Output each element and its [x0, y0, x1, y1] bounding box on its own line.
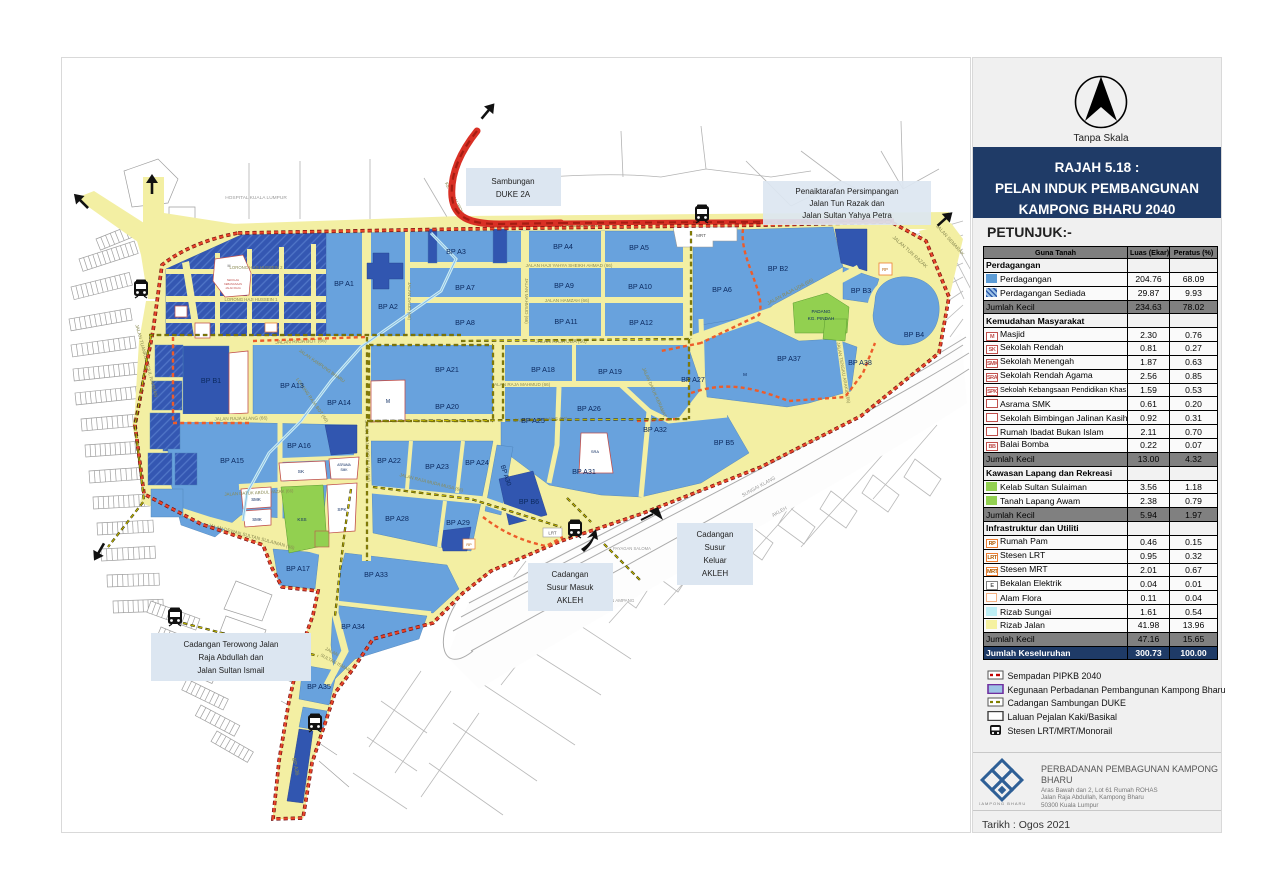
svg-text:BP A13: BP A13 — [280, 381, 304, 390]
svg-text:KAMPONG BHARU: KAMPONG BHARU — [979, 801, 1026, 806]
svg-text:SK: SK — [298, 469, 305, 475]
svg-text:ASRAMA: ASRAMA — [337, 463, 351, 467]
svg-text:KG. PINDAH: KG. PINDAH — [808, 316, 835, 321]
svg-text:BP A17: BP A17 — [286, 564, 310, 573]
svg-text:SEKOLAH: SEKOLAH — [227, 278, 239, 282]
svg-text:BP A3: BP A3 — [446, 247, 466, 256]
svg-text:BP A1: BP A1 — [334, 279, 354, 288]
svg-text:BP B4: BP B4 — [904, 330, 924, 339]
svg-text:JALAN HAJI YAHYA SHEIKH AHMAD: JALAN HAJI YAHYA SHEIKH AHMAD (66) — [526, 263, 613, 268]
svg-text:BP A37: BP A37 — [777, 354, 801, 363]
svg-text:Susur Masuk: Susur Masuk — [547, 583, 595, 592]
svg-text:JALAN HAMZAH (66): JALAN HAMZAH (66) — [545, 298, 590, 303]
svg-text:BP A15: BP A15 — [220, 456, 244, 465]
svg-text:BP A32: BP A32 — [643, 425, 667, 434]
svg-text:KEBANGSAAN: KEBANGSAAN — [224, 282, 242, 286]
svg-text:Susur: Susur — [705, 543, 726, 552]
svg-text:BP A24: BP A24 — [465, 458, 489, 467]
svg-text:AKLEH: AKLEH — [557, 596, 583, 605]
svg-text:BP A22: BP A22 — [377, 456, 401, 465]
svg-text:BP A33: BP A33 — [364, 570, 388, 579]
svg-text:BP A35: BP A35 — [307, 682, 331, 691]
svg-text:BP A10: BP A10 — [628, 282, 652, 291]
svg-text:BP A27: BP A27 — [681, 375, 705, 384]
svg-text:BP B3: BP B3 — [851, 286, 871, 295]
svg-text:HOSPITAL KUALA LUMPUR: HOSPITAL KUALA LUMPUR — [225, 195, 287, 201]
svg-text:M: M — [386, 399, 390, 405]
svg-text:BP A5: BP A5 — [629, 243, 649, 252]
svg-text:Keluar: Keluar — [703, 556, 726, 565]
svg-text:SPK: SPK — [337, 507, 347, 512]
svg-text:Jalan Sultan Ismail: Jalan Sultan Ismail — [197, 666, 264, 675]
svg-text:SMK: SMK — [252, 517, 262, 522]
svg-text:PAYAGAN SALOMA: PAYAGAN SALOMA — [613, 546, 651, 551]
svg-text:BP A16: BP A16 — [287, 441, 311, 450]
svg-text:JALAN RAJA: JALAN RAJA — [225, 286, 241, 290]
svg-text:SMK: SMK — [251, 497, 261, 502]
svg-text:BP B5: BP B5 — [714, 438, 734, 447]
svg-text:KSS: KSS — [297, 517, 306, 522]
svg-text:BP A28: BP A28 — [385, 514, 409, 523]
svg-text:BP A38: BP A38 — [848, 358, 872, 367]
svg-text:Sambungan: Sambungan — [491, 177, 534, 186]
svg-text:BP A2: BP A2 — [378, 302, 398, 311]
svg-text:DUKE 2A: DUKE 2A — [496, 190, 531, 199]
svg-text:RP: RP — [466, 543, 472, 547]
svg-text:Jalan Sultan Yahya Petra: Jalan Sultan Yahya Petra — [802, 211, 892, 220]
svg-text:BP A21: BP A21 — [435, 365, 459, 374]
svg-text:BP A26: BP A26 — [577, 404, 601, 413]
svg-text:BP A6: BP A6 — [712, 285, 732, 294]
svg-text:Cadangan: Cadangan — [697, 530, 734, 539]
svg-text:BP B1: BP B1 — [201, 376, 221, 385]
svg-text:Cadangan Terowong Jalan: Cadangan Terowong Jalan — [183, 640, 278, 649]
svg-text:BP A18: BP A18 — [531, 365, 555, 374]
svg-text:BP A7: BP A7 — [455, 283, 475, 292]
svg-text:LORONG HAJI HUSSEIN 2: LORONG HAJI HUSSEIN 2 — [229, 265, 283, 270]
svg-text:LRT: LRT — [548, 531, 557, 536]
svg-text:BP A11: BP A11 — [554, 317, 577, 326]
svg-text:BP A8: BP A8 — [455, 318, 475, 327]
svg-text:JALAN DAUD (66): JALAN DAUD (66) — [407, 282, 412, 321]
svg-text:BP A12: BP A12 — [629, 318, 653, 327]
svg-text:BP A20: BP A20 — [435, 402, 459, 411]
svg-text:BP A31: BP A31 — [572, 467, 596, 476]
svg-text:PADANG: PADANG — [811, 309, 830, 314]
svg-text:MRT: MRT — [696, 233, 706, 238]
svg-text:BP B2: BP B2 — [768, 264, 788, 273]
svg-text:JALAN MAHMUD (66): JALAN MAHMUD (66) — [524, 278, 529, 324]
svg-text:M: M — [743, 372, 747, 377]
svg-text:BP B6: BP B6 — [519, 497, 539, 506]
svg-text:BP A25: BP A25 — [521, 416, 545, 425]
svg-text:BP A9: BP A9 — [554, 281, 574, 290]
svg-text:Raja Abdullah dan: Raja Abdullah dan — [199, 653, 264, 662]
svg-text:Penaiktarafan Persimpangan: Penaiktarafan Persimpangan — [795, 187, 898, 196]
svg-text:SMK: SMK — [341, 468, 349, 472]
svg-text:Tanpa Skala: Tanpa Skala — [1073, 133, 1128, 144]
svg-text:SRA: SRA — [591, 449, 600, 454]
svg-text:BP A19: BP A19 — [598, 367, 622, 376]
svg-text:Jalan Tun Razak dan: Jalan Tun Razak dan — [809, 199, 884, 208]
svg-text:AKLEH: AKLEH — [702, 569, 728, 578]
svg-text:BP A34: BP A34 — [341, 622, 365, 631]
svg-text:JALAN RAJA MAHMUD (66): JALAN RAJA MAHMUD (66) — [492, 382, 551, 387]
svg-text:BP A4: BP A4 — [553, 242, 573, 251]
svg-text:JALAN RAJA ALANG (66): JALAN RAJA ALANG (66) — [214, 416, 268, 422]
svg-text:BP A14: BP A14 — [327, 398, 351, 407]
svg-text:Cadangan: Cadangan — [552, 570, 589, 579]
svg-text:LORONG HAJI HUSSEIN 1: LORONG HAJI HUSSEIN 1 — [224, 297, 278, 302]
svg-text:BP A23: BP A23 — [425, 462, 449, 471]
svg-text:BP A29: BP A29 — [446, 518, 470, 527]
svg-text:RP: RP — [882, 267, 888, 272]
